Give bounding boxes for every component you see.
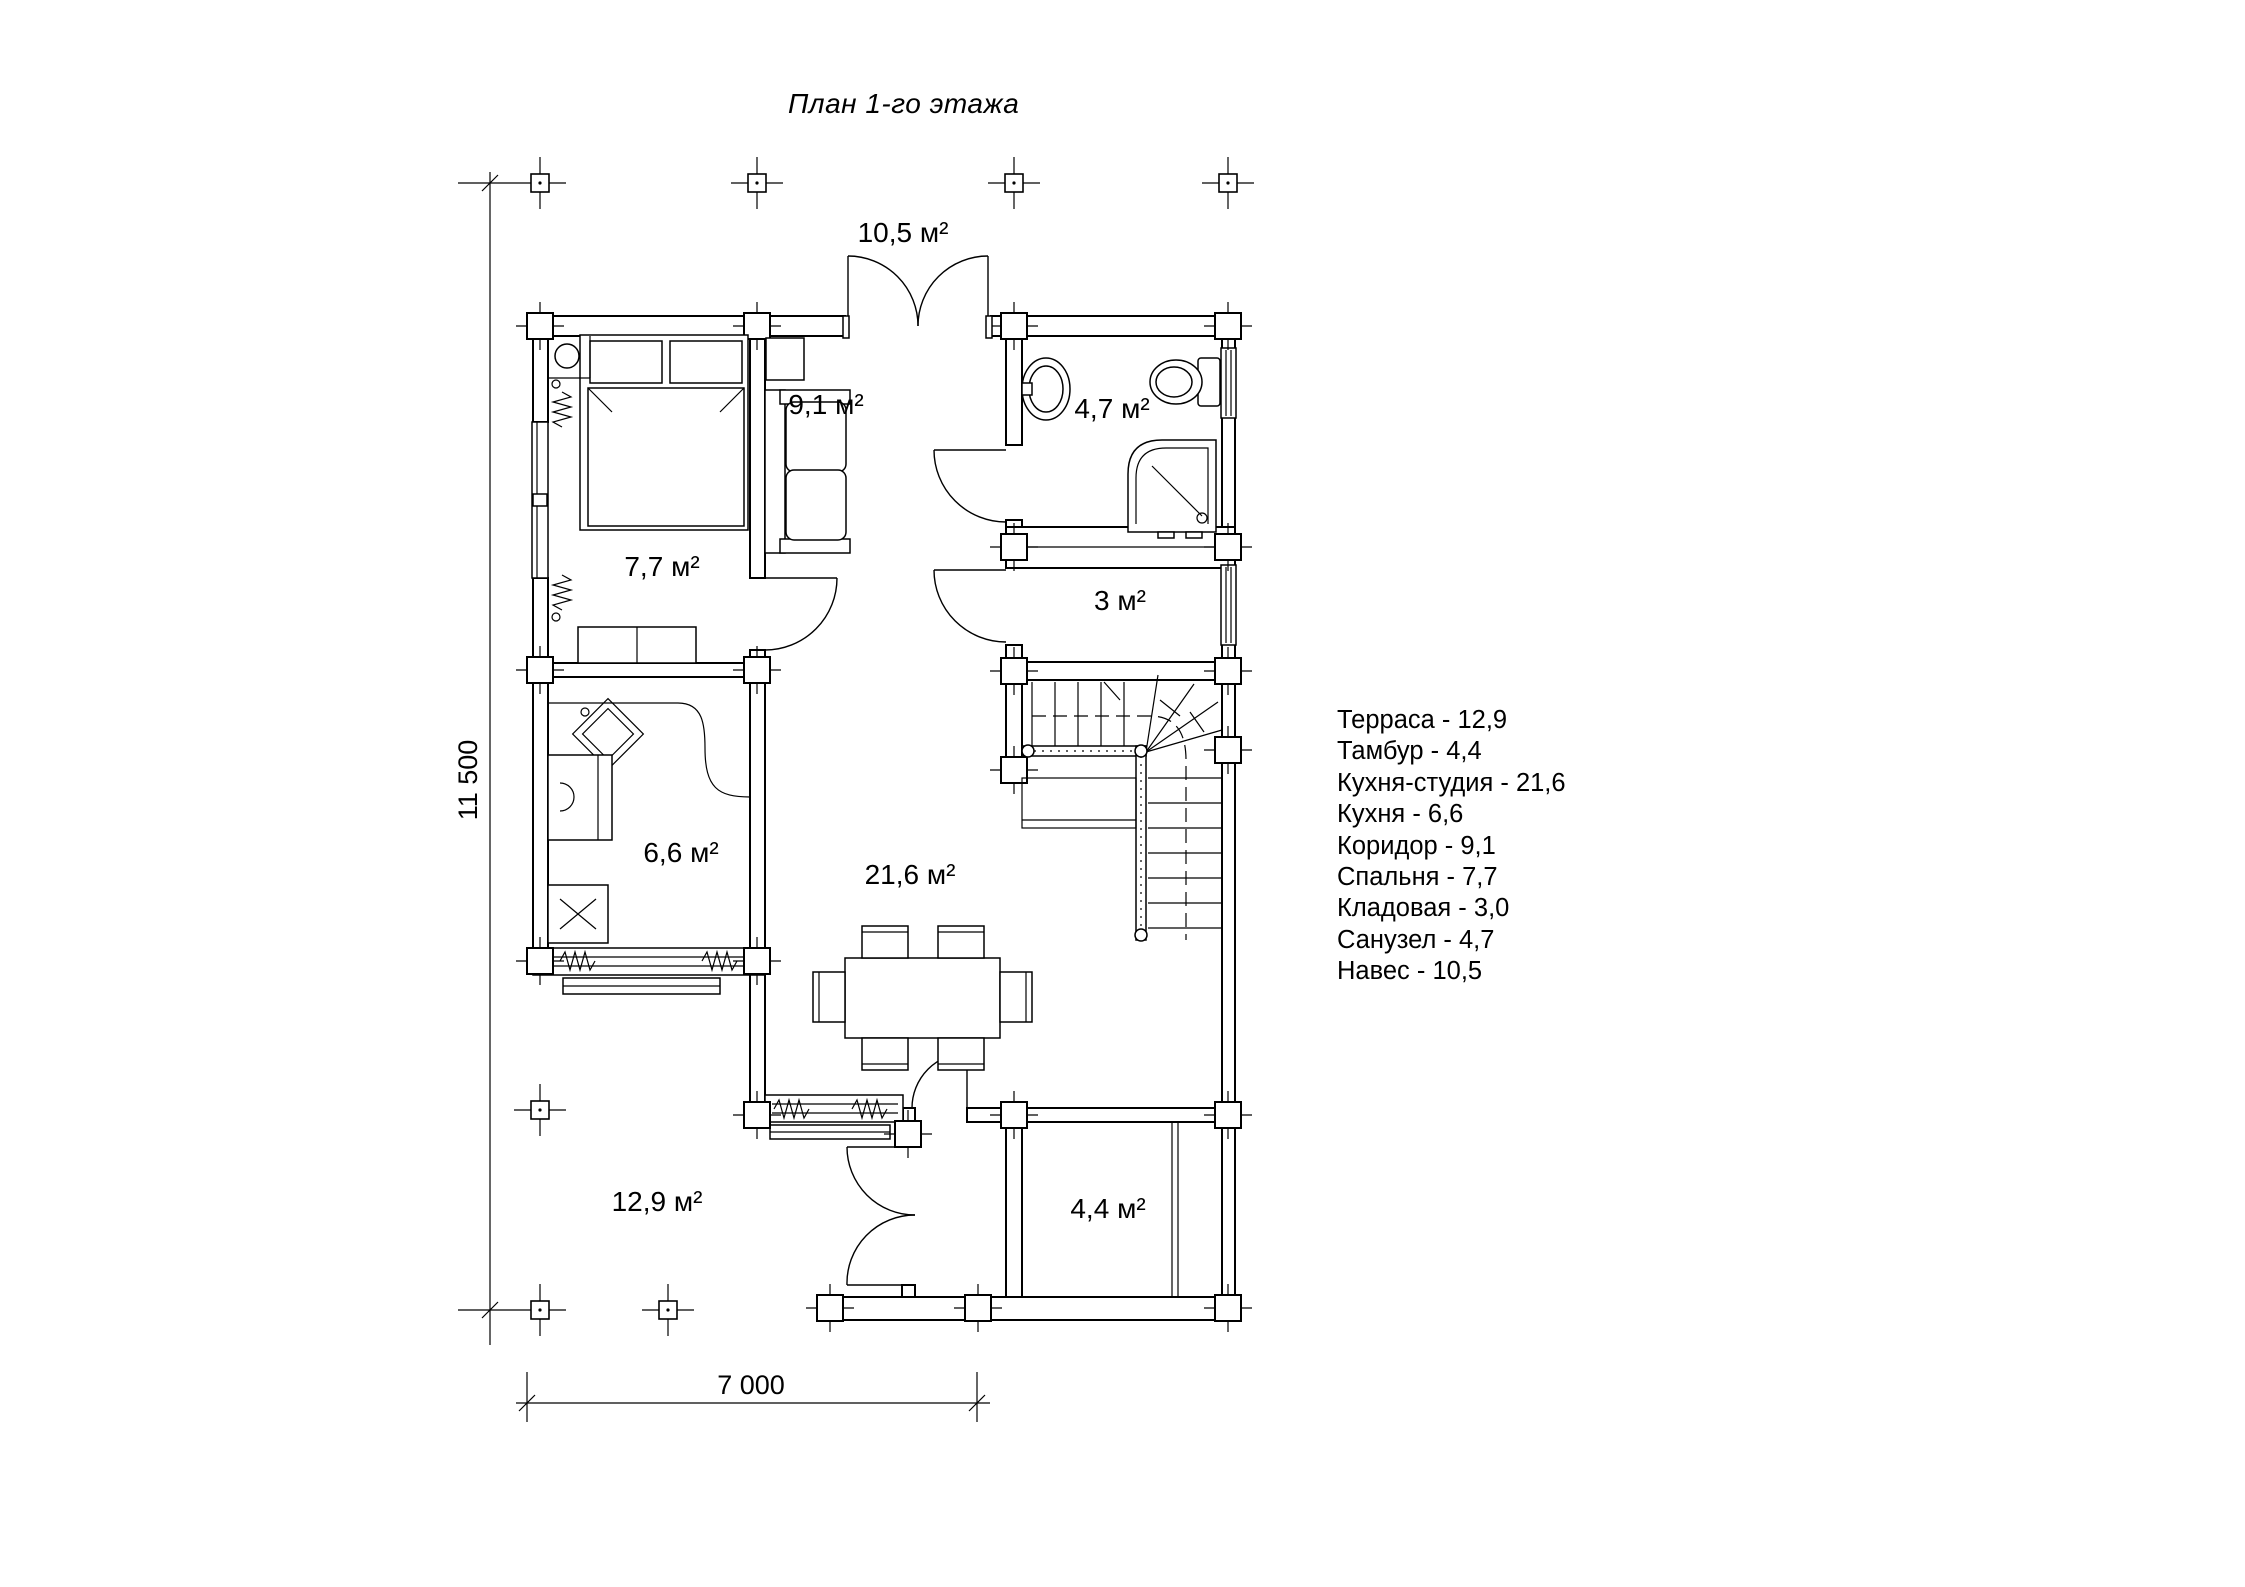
legend-item: Кухня-студия - 21,6 [1337, 768, 1566, 799]
dimension-vertical: 11 500 [453, 172, 514, 1345]
room-legend: Терраса - 12,9 Тамбур - 4,4 Кухня-студия… [1337, 705, 1566, 988]
kitchen-counter [548, 699, 750, 943]
room-label-terrasa: 12,9 м² [612, 1186, 703, 1217]
legend-item: Тамбур - 4,4 [1337, 736, 1566, 767]
bathroom-sink [1022, 358, 1070, 420]
legend-item: Навес - 10,5 [1337, 956, 1566, 987]
bathroom-door [934, 450, 1006, 522]
dining-table [813, 926, 1032, 1070]
shower [1128, 440, 1216, 538]
legend-item: Коридор - 9,1 [1337, 831, 1566, 862]
room-label-naves: 10,5 м² [858, 217, 949, 248]
legend-item: Санузел - 4,7 [1337, 925, 1566, 956]
room-label-studio: 21,6 м² [865, 859, 956, 890]
bedroom-door [765, 578, 837, 650]
bed [580, 335, 748, 530]
room-label-koridor: 9,1 м² [788, 389, 863, 420]
floor-plan-drawing: 11 500 7 000 10,5 м² 9,1 м² 4,7 м² 7,7 м… [0, 0, 2245, 1587]
dimension-width-label: 7 000 [717, 1370, 785, 1400]
entrance-double-door [843, 256, 992, 338]
room-label-sanuzel: 4,7 м² [1074, 393, 1149, 424]
room-label-tambur: 4,4 м² [1070, 1193, 1145, 1224]
dimension-height-label: 11 500 [453, 740, 483, 821]
legend-item: Кухня - 6,6 [1337, 799, 1566, 830]
side-table [766, 338, 804, 380]
room-label-kuhnya: 6,6 м² [643, 837, 718, 868]
floor-plan-page: План 1-го этажа [0, 0, 2245, 1587]
dimension-horizontal: 7 000 [516, 1370, 990, 1422]
room-label-kladovaya: 3 м² [1094, 585, 1146, 616]
legend-item: Спальня - 7,7 [1337, 862, 1566, 893]
staircase [1022, 675, 1222, 941]
toilet [1150, 358, 1220, 406]
legend-item: Терраса - 12,9 [1337, 705, 1566, 736]
tambour-double-door [847, 1147, 915, 1285]
dresser [578, 627, 696, 663]
legend-item: Кладовая - 3,0 [1337, 893, 1566, 924]
storage-door [934, 570, 1006, 642]
room-label-spalnya: 7,7 м² [624, 551, 699, 582]
